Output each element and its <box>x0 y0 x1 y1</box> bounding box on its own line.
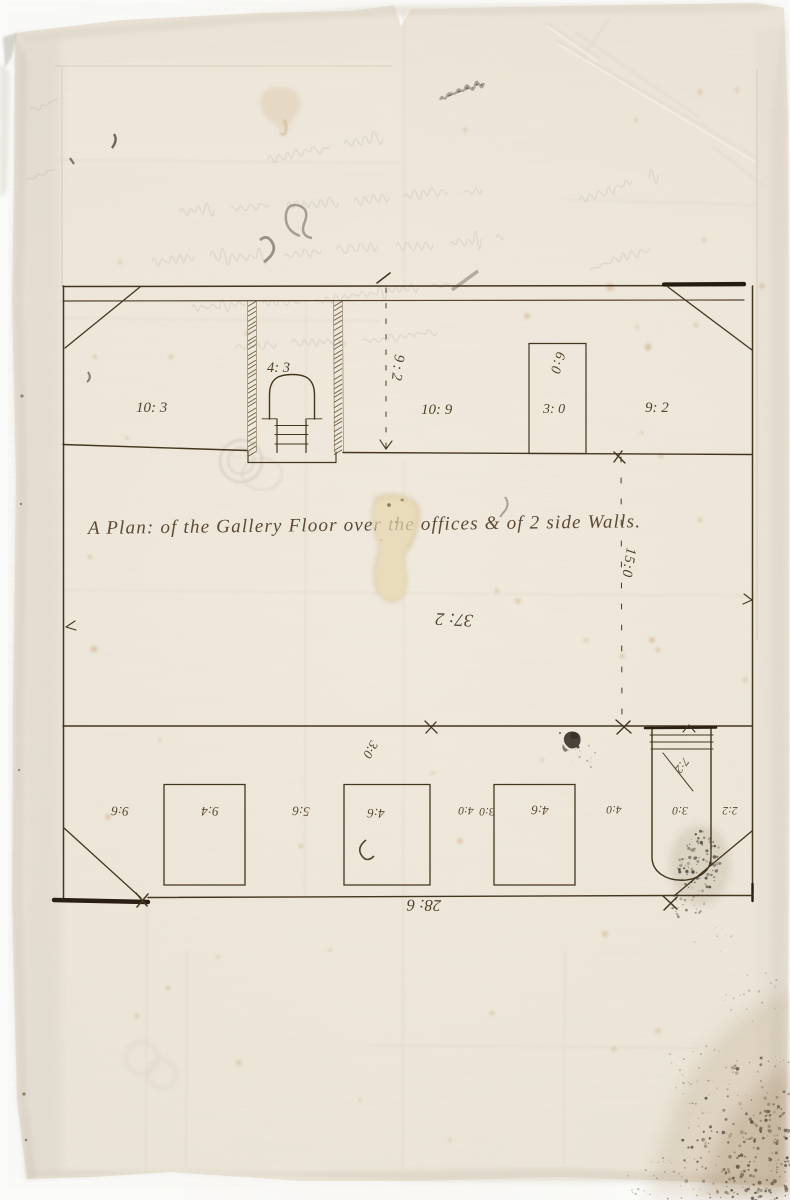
svg-text:4: 3: 4: 3 <box>267 360 290 376</box>
svg-text:37: 2: 37: 2 <box>435 609 474 631</box>
svg-text:M E T: M E T <box>232 455 248 461</box>
svg-text:10: 3: 10: 3 <box>136 400 167 416</box>
svg-text:28: 6: 28: 6 <box>406 896 441 916</box>
svg-text:2:2: 2:2 <box>722 804 738 816</box>
svg-text:9:4: 9:4 <box>201 804 219 819</box>
svg-text:3:0: 3:0 <box>672 804 689 816</box>
svg-text:4:0: 4:0 <box>606 803 622 815</box>
svg-text:3:0: 3:0 <box>479 805 496 817</box>
svg-text:10: 9: 10: 9 <box>421 402 453 418</box>
svg-text:3: 0: 3: 0 <box>542 402 565 417</box>
svg-text:4:6: 4:6 <box>367 806 385 821</box>
svg-text:5:6: 5:6 <box>291 804 310 820</box>
svg-text:9: 2: 9: 2 <box>645 400 669 416</box>
svg-text:4:6: 4:6 <box>531 803 549 819</box>
svg-text:9:6: 9:6 <box>111 804 129 820</box>
svg-text:4:0: 4:0 <box>458 804 474 816</box>
